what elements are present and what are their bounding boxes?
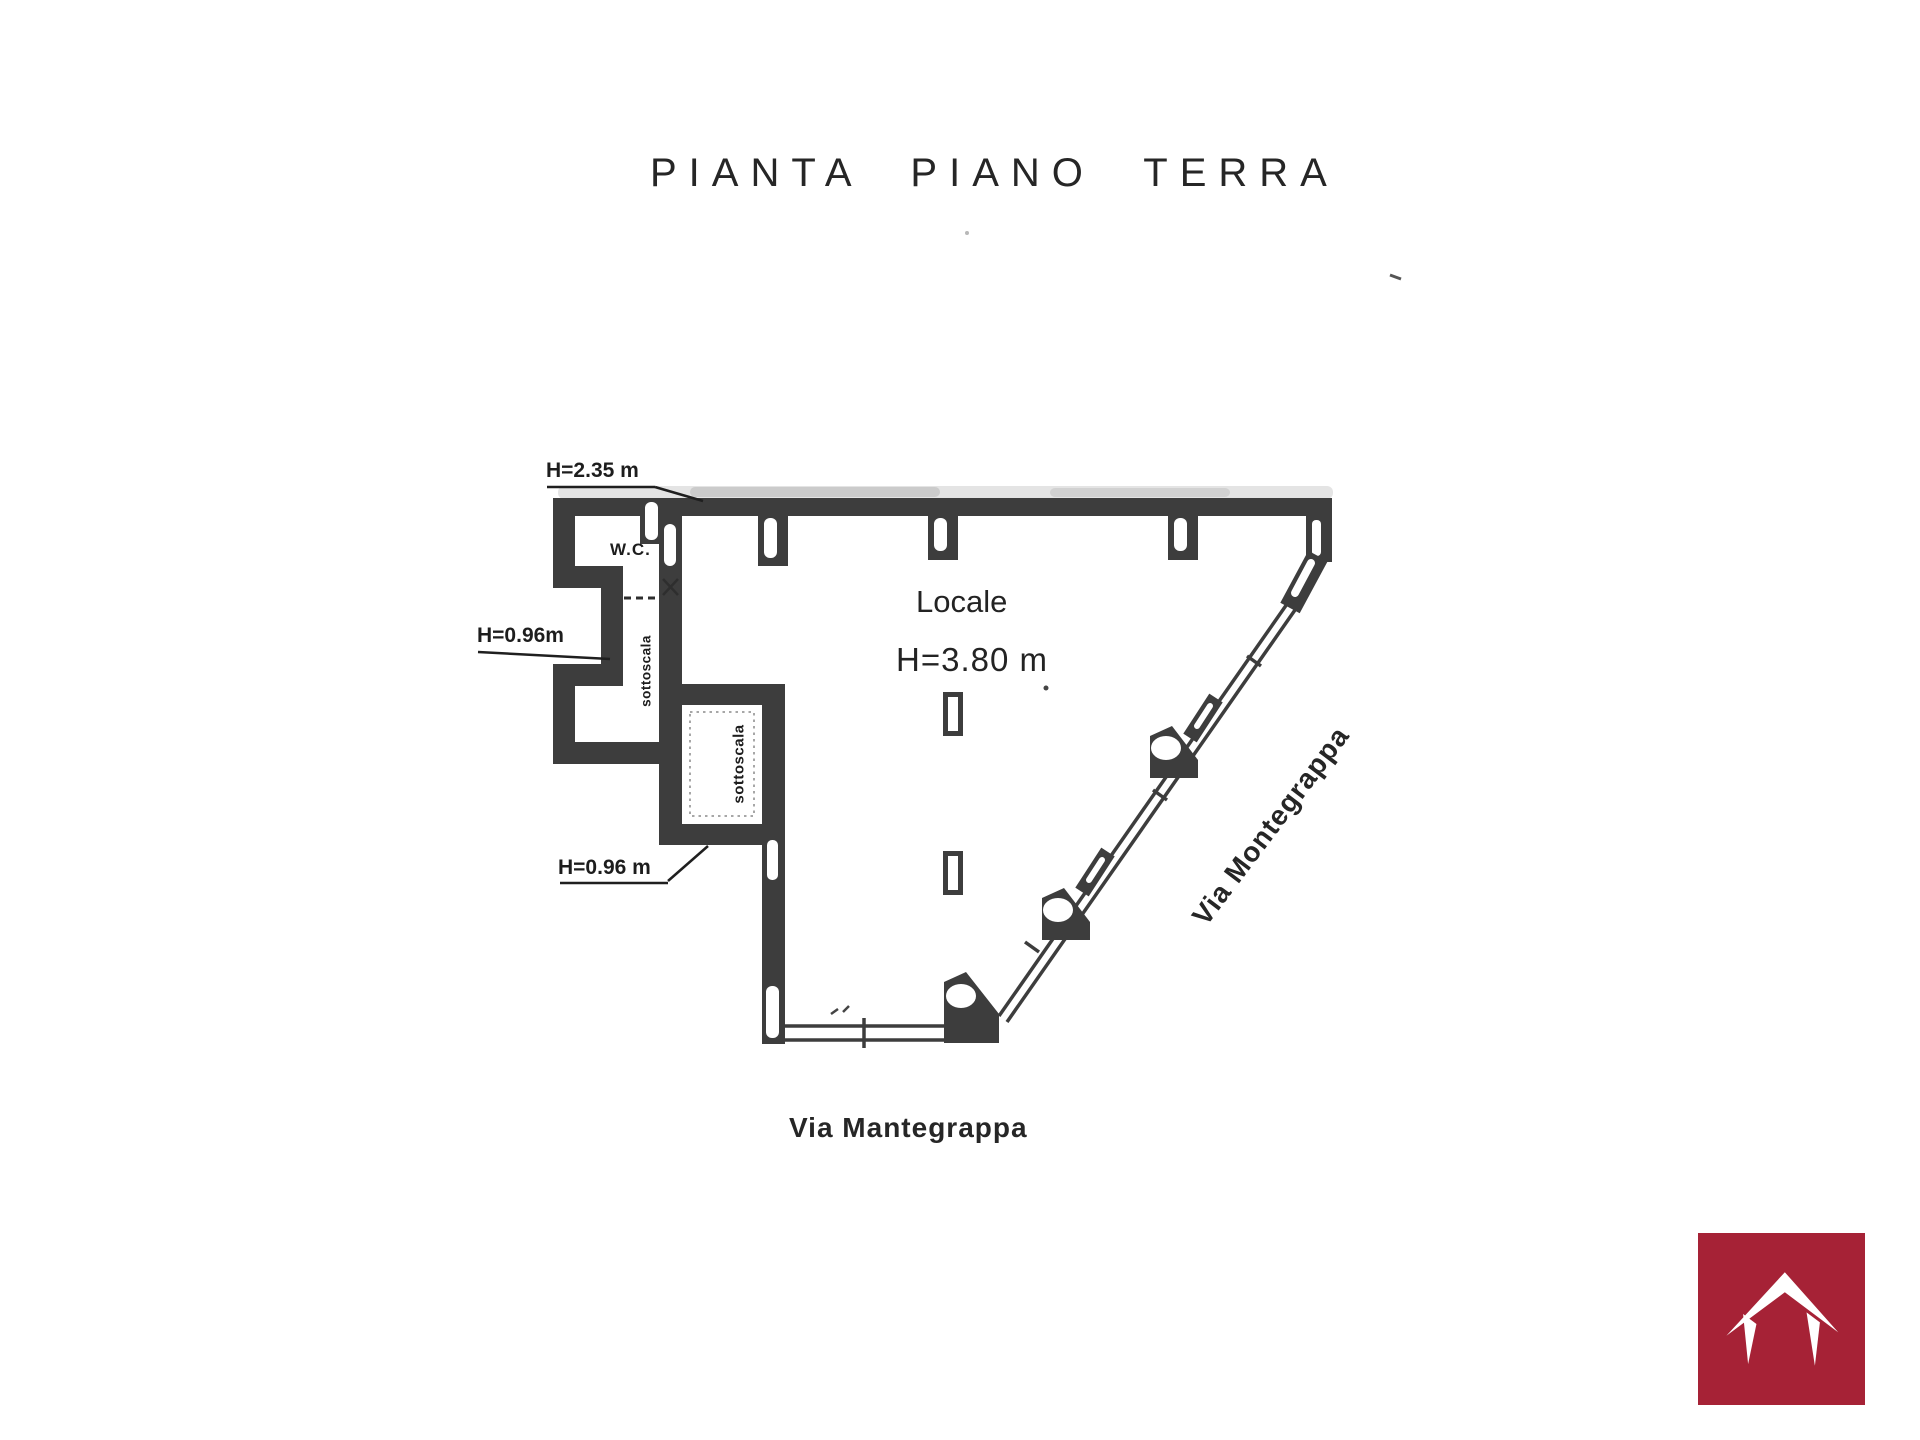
bottom-wall (785, 1018, 944, 1048)
page-title: PIANTA PIANO TERRA (650, 151, 1339, 196)
label-room-height: H=3.80 m (896, 641, 1048, 679)
label-sottoscala-lower: sottoscala (731, 724, 748, 803)
label-height-0-96-upper: H=0.96m (477, 624, 564, 648)
street-label-via-mantegrappa: Via Mantegrappa (789, 1112, 1028, 1144)
label-wc: W.C. (610, 540, 651, 560)
diagonal-facade (999, 556, 1318, 1022)
facade-door-jambs (944, 726, 1198, 1043)
agency-logo (1698, 1233, 1865, 1405)
roof-icon (1698, 1233, 1865, 1405)
label-room-name: Locale (916, 584, 1007, 620)
label-sottoscala-upper: sottoscala (639, 635, 654, 707)
label-height-0-96-lower: H=0.96 m (558, 856, 651, 880)
label-height-2-35: H=2.35 m (546, 459, 639, 483)
floor-pillars (943, 692, 963, 895)
scanned-floor-plan-page: PIANTA PIANO TERRA H=2.35 m W.C. H=0.96m… (0, 0, 1920, 1440)
floor-plan-drawing (0, 0, 1920, 1440)
walls (553, 498, 1332, 1044)
